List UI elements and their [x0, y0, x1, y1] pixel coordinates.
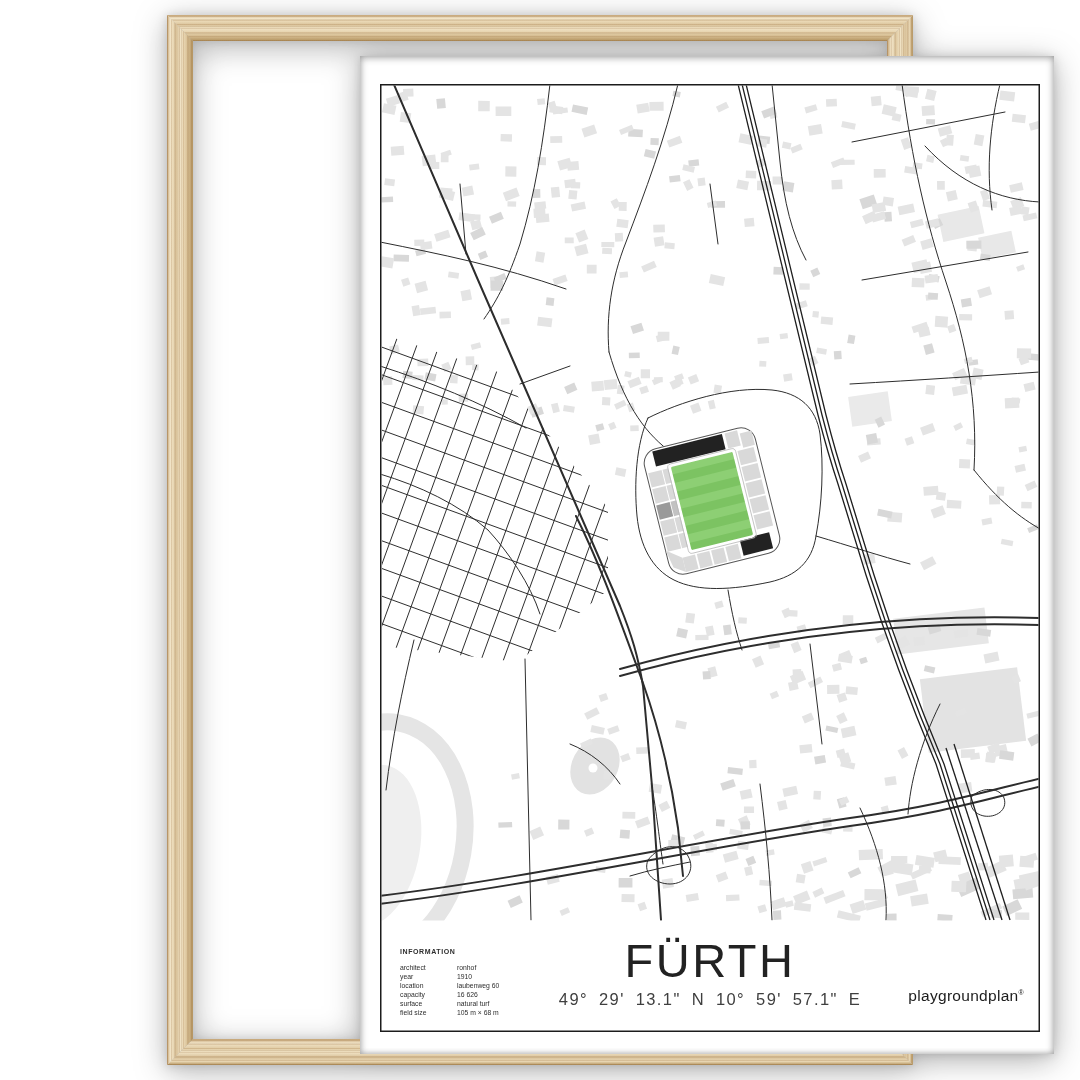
map-area: INFORMATION architect ronhof year 1910 l…	[380, 84, 1040, 1032]
poster: INFORMATION architect ronhof year 1910 l…	[360, 56, 1054, 1054]
city-map	[380, 84, 1040, 1032]
picture-frame: INFORMATION architect ronhof year 1910 l…	[167, 15, 913, 1065]
poster-title: FÜRTH	[380, 935, 1040, 987]
product-mockup: { "poster": { "title": "FÜRTH", "coordin…	[0, 0, 1080, 1080]
frame-top-rail	[167, 15, 913, 41]
brand-logo: playgroundplan®	[908, 987, 1024, 1005]
info-row-field-size: field size 105 m × 68 m	[400, 1008, 499, 1017]
frame-left-rail	[167, 15, 193, 1065]
registered-mark: ®	[1019, 989, 1024, 996]
stadium	[641, 425, 783, 578]
